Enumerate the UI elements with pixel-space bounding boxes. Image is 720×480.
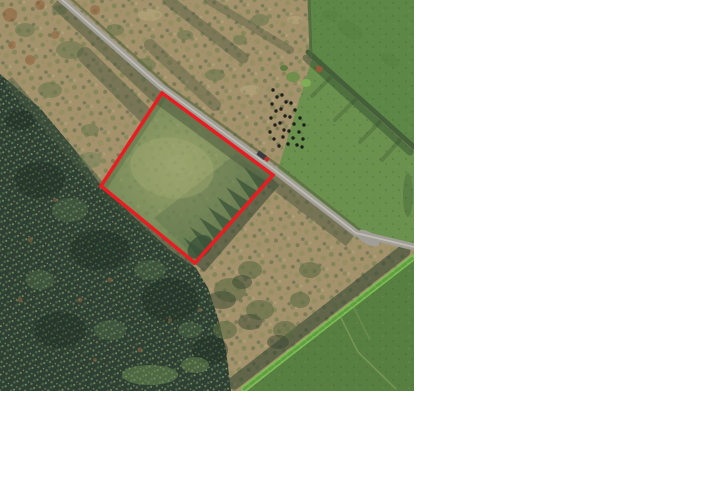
page-canvas xyxy=(0,0,720,480)
aerial-photo xyxy=(0,0,414,391)
aerial-photo-svg xyxy=(0,0,414,391)
